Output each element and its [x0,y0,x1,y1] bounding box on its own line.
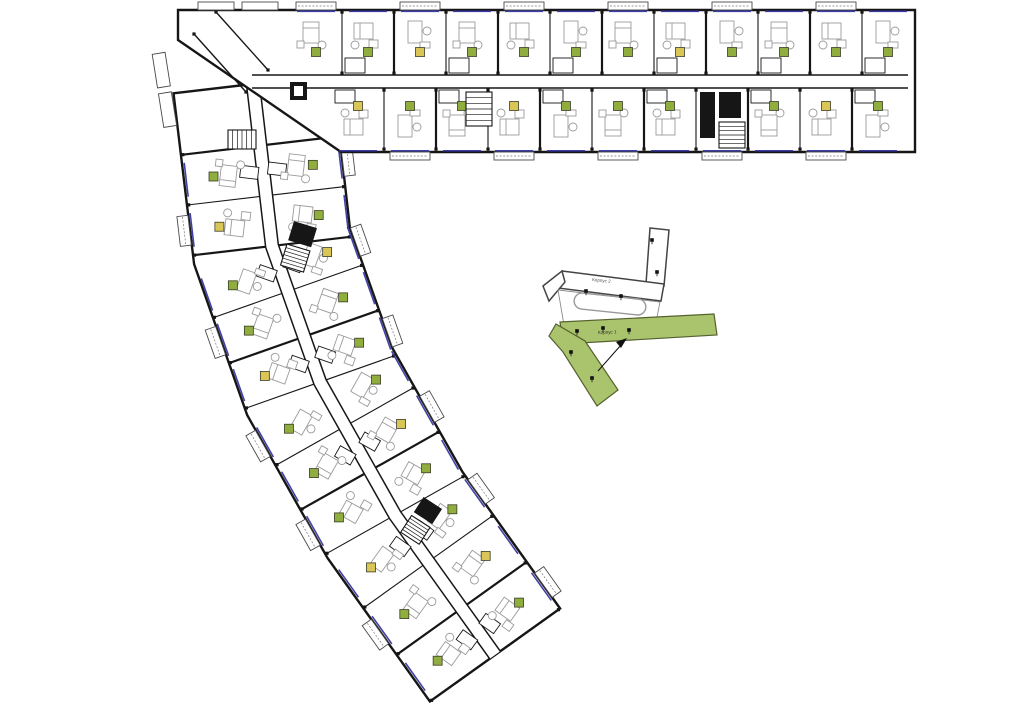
bed-icon [344,119,363,135]
column-dot [642,148,645,151]
unit-area-badge [334,513,343,522]
unit-area-badge [366,563,375,572]
column-dot [436,431,439,434]
elevator-core [700,92,715,138]
unit-area-badge [728,48,737,57]
unit-area-badge [284,424,293,433]
column-dot [187,203,190,206]
korpus2-vertical-arm [646,228,669,286]
column-dot [376,309,379,312]
elevator-cab [294,86,303,96]
column-dot [444,72,447,75]
unit-area-badge [448,505,457,514]
bed-icon [564,21,578,43]
bed-icon [292,205,313,223]
column-dot [548,72,551,75]
wardrobe-icon [525,40,534,48]
table-icon [351,41,359,49]
column-dot [229,361,232,364]
table-icon [301,174,310,183]
column-dot [756,72,759,75]
entrance-marker [569,350,573,354]
column-dot [486,89,489,92]
column-dot [192,32,195,35]
table-icon [569,123,577,131]
bed-icon [287,154,305,177]
column-dot [496,11,499,14]
unit-area-badge [780,48,789,57]
column-dot [342,185,345,188]
korpus1-label: Корпус 1 [598,329,617,335]
column-dot [798,89,801,92]
unit-area-badge [244,326,253,335]
chair-icon [755,110,762,117]
bed-icon [866,115,880,137]
bathroom-walls [761,58,781,73]
chair-icon [215,159,223,167]
bed-icon [459,22,475,43]
column-dot [461,475,464,478]
column-dot [850,89,853,92]
entrance-marker [627,328,631,332]
wardrobe-icon [369,40,378,48]
entrance-marker [655,270,659,274]
unit-area-badge [228,281,237,290]
column-dot [600,72,603,75]
chair-icon [443,110,450,117]
unit-area-badge [515,598,524,607]
dresser-icon [888,42,898,48]
bed-icon [605,115,621,136]
column-dot [538,148,541,151]
column-dot [642,89,645,92]
table-icon [735,27,743,35]
chair-icon [280,172,288,180]
table-icon [653,109,661,117]
column-dot [490,515,493,518]
column-dot [538,89,541,92]
column-dot [360,264,363,267]
table-icon [579,27,587,35]
column-dot [746,89,749,92]
wardrobe-icon [671,110,680,118]
bathroom-walls [335,90,355,103]
bathroom-walls [647,90,667,103]
entrance-marker [619,294,623,298]
unit-area-badge [372,375,381,384]
table-icon [497,109,505,117]
site-plan-keymap: Корпус 2 Корпус 1 [543,228,717,406]
unit-area-badge [400,610,409,619]
column-dot [382,148,385,151]
column-dot [214,10,217,13]
bed-icon [656,119,675,135]
unit-area-badge [884,48,893,57]
diagonal-wing [174,75,562,702]
bed-icon [822,23,841,39]
bed-icon [666,23,685,39]
section-arrow [598,345,621,371]
column-dot [213,316,216,319]
unit-area-badge [339,293,348,302]
bathroom-walls [439,90,459,103]
bed-icon [761,115,777,136]
unit-area-badge [468,48,477,57]
column-dot [590,148,593,151]
bed-icon [398,115,412,137]
unit-area-badge [308,160,317,169]
column-dot [704,11,707,14]
entrance-marker [575,329,579,333]
table-icon [819,41,827,49]
column-dot [694,89,697,92]
column-dot [590,89,593,92]
column-dot [808,11,811,14]
balcony [198,2,234,10]
chair-icon [453,41,460,48]
wardrobe-icon [837,40,846,48]
elevator-core [719,92,741,118]
unit-area-badge [323,248,332,257]
column-dot [434,148,437,151]
bathroom-walls [751,90,771,103]
dresser-icon [732,42,742,48]
unit-area-badge [433,656,442,665]
column-dot [860,11,863,14]
column-dot [411,386,414,389]
bed-icon [812,119,831,135]
dresser-icon [576,42,586,48]
unit-area-badge [832,48,841,57]
unit-area-badge [676,48,685,57]
column-dot [193,253,196,256]
bed-icon [219,165,237,188]
floor-plan-page: Корпус 2 Корпус 1 [0,0,1024,724]
wardrobe-icon [359,110,368,118]
unit-area-badge [312,48,321,57]
column-dot [652,72,655,75]
column-dot [746,148,749,151]
bed-icon [720,21,734,43]
table-icon [223,208,232,217]
unit-area-badge [260,371,269,380]
bathroom-walls [865,58,885,73]
bed-icon [408,21,422,43]
unit-area-badge [309,469,318,478]
column-dot [181,153,184,156]
wardrobe-icon [515,110,524,118]
unit-area-badge [314,211,323,220]
bathroom-walls [657,58,677,73]
chair-icon [765,41,772,48]
bed-icon [615,22,631,43]
bed-icon [224,219,245,237]
unit-area-badge [562,102,571,111]
column-dot [392,11,395,14]
balcony [152,52,170,88]
dresser-icon [566,110,576,116]
unit-area-badge [874,102,883,111]
column-dot [548,11,551,14]
unit-area-badge [354,102,363,111]
column-dot [496,72,499,75]
unit-area-badge [416,48,425,57]
column-dot [704,72,707,75]
wardrobe-icon [241,212,251,221]
bathroom-walls [345,58,365,73]
column-dot [557,608,560,611]
column-dot [434,89,437,92]
unit-area-badge [572,48,581,57]
column-dot [392,72,395,75]
unit-area-badge [614,102,623,111]
unit-area-badge [822,102,831,111]
bed-icon [449,115,465,136]
column-dot [300,507,303,510]
unit-area-badge [520,48,529,57]
unit-area-badge [215,222,224,231]
column-dot [850,148,853,151]
column-dot [382,89,385,92]
chair-icon [609,41,616,48]
column-dot [363,605,366,608]
table-icon [341,109,349,117]
unit-area-badge [481,551,490,560]
column-dot [486,148,489,151]
column-dot [325,552,328,555]
bed-icon [354,23,373,39]
column-dot [430,699,433,702]
table-icon [236,160,245,169]
column-dot [266,68,269,71]
unit-area-badge [397,419,406,428]
bed-icon [876,21,890,43]
table-icon [891,27,899,35]
column-dot [340,72,343,75]
table-icon [423,27,431,35]
bathroom-walls [543,90,563,103]
column-dot [652,11,655,14]
column-dot [808,72,811,75]
dresser-icon [878,110,888,116]
balcony [242,2,278,10]
unit-area-badge [624,48,633,57]
column-dot [275,463,278,466]
column-dot [340,11,343,14]
bed-icon [500,119,519,135]
column-dot [756,11,759,14]
entrance-marker [590,376,594,380]
bed-icon [554,115,568,137]
bathroom-walls [855,90,875,103]
bed-icon [510,23,529,39]
chair-icon [297,41,304,48]
table-icon [809,109,817,117]
entrance-marker [584,289,588,293]
wardrobe-icon [681,40,690,48]
column-dot [860,72,863,75]
bathroom-walls [449,58,469,73]
unit-area-badge [458,102,467,111]
unit-area-badge [355,338,364,347]
table-icon [881,123,889,131]
floor-plan-canvas: Корпус 2 Корпус 1 [0,0,1024,724]
column-dot [245,406,248,409]
side-balconies [152,52,176,127]
column-dot [397,652,400,655]
bed-icon [771,22,787,43]
unit-area-badge [209,172,218,181]
unit-area-badge [364,48,373,57]
wardrobe-icon [827,110,836,118]
chair-icon [599,110,606,117]
dresser-icon [420,42,430,48]
unit-area-badge [510,102,519,111]
unit-area-badge [666,102,675,111]
column-dot [524,561,527,564]
dresser-icon [410,110,420,116]
table-icon [507,41,515,49]
unit-area-badge [406,102,415,111]
bathroom-walls [553,58,573,73]
column-dot [244,90,247,93]
bed-icon [303,22,319,43]
column-dot [694,148,697,151]
unit-area-badge [770,102,779,111]
corridor [252,76,908,87]
column-dot [444,11,447,14]
column-dot [798,148,801,151]
column-dot [600,11,603,14]
unit-area-badge [422,464,431,473]
table-icon [663,41,671,49]
entrance-marker [650,238,654,242]
table-icon [413,123,421,131]
